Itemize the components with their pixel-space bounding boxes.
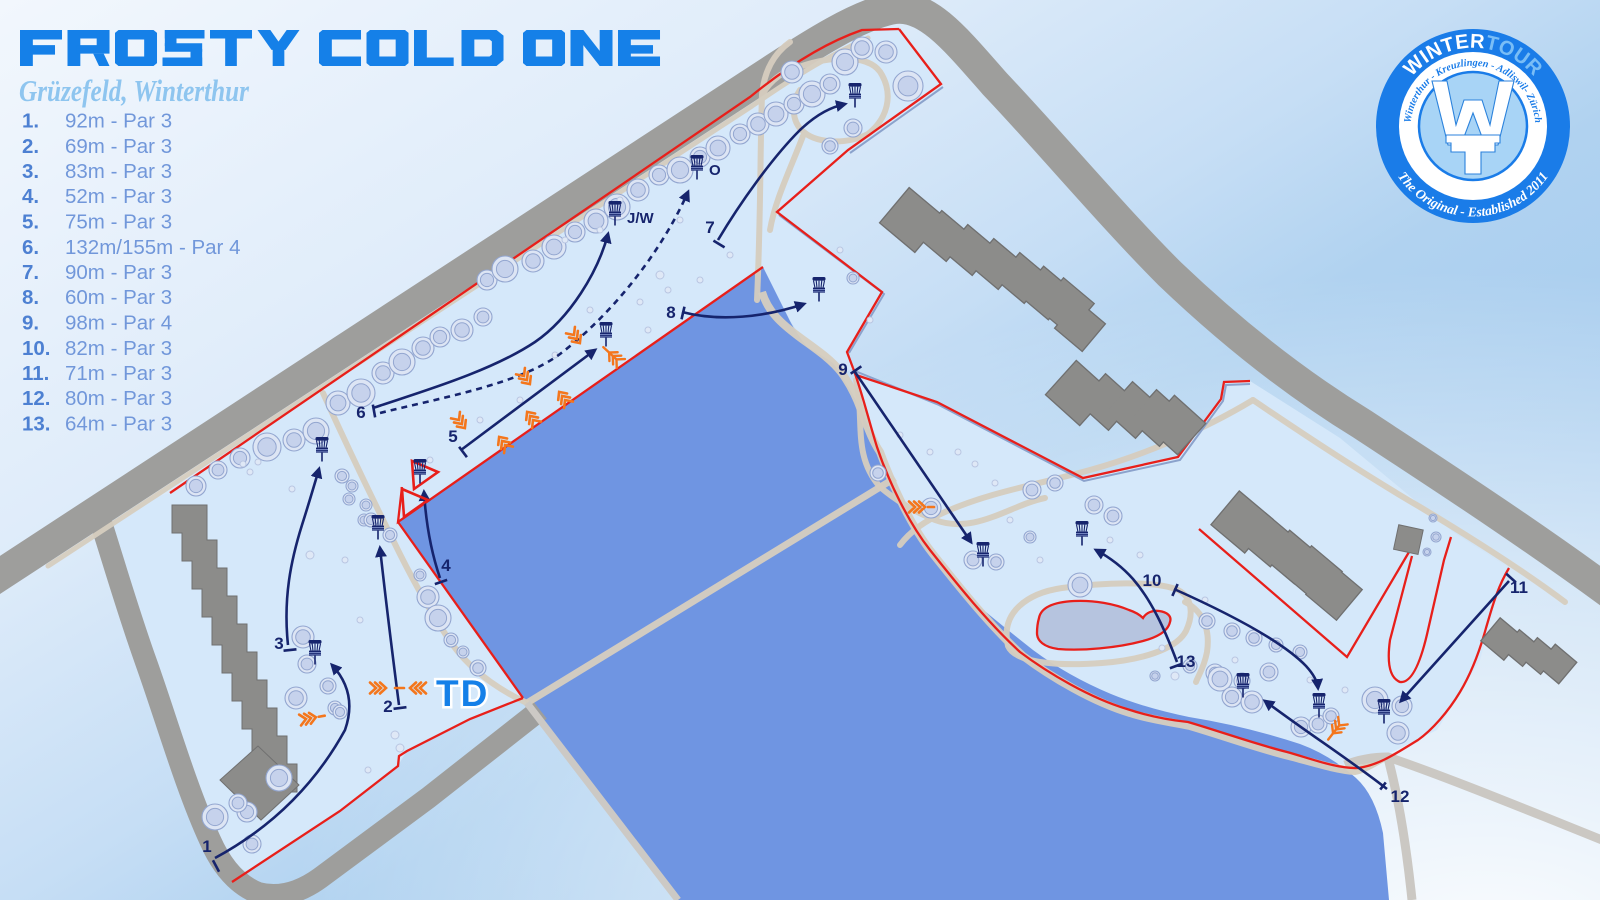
svg-text:3.: 3. (22, 160, 39, 183)
svg-text:98m - Par 4: 98m - Par 4 (65, 312, 172, 335)
svg-text:90m - Par 3: 90m - Par 3 (65, 261, 172, 284)
svg-text:TD: TD (436, 673, 489, 714)
svg-text:92m - Par 3: 92m - Par 3 (65, 110, 172, 133)
svg-text:13: 13 (1177, 652, 1196, 671)
svg-text:6: 6 (356, 403, 365, 422)
svg-text:75m - Par 3: 75m - Par 3 (65, 211, 172, 234)
svg-text:5: 5 (448, 427, 457, 446)
svg-text:11: 11 (1510, 578, 1528, 597)
svg-text:2.: 2. (22, 135, 39, 158)
svg-text:3: 3 (274, 634, 283, 653)
svg-text:8.: 8. (22, 286, 39, 309)
svg-text:4.: 4. (22, 185, 39, 208)
svg-text:71m - Par 3: 71m - Par 3 (65, 362, 172, 385)
svg-text:8: 8 (666, 303, 675, 322)
svg-text:83m - Par 3: 83m - Par 3 (65, 160, 172, 183)
svg-text:Grüzefeld, Winterthur: Grüzefeld, Winterthur (19, 73, 250, 108)
svg-text:10: 10 (1143, 571, 1162, 590)
svg-text:82m - Par 3: 82m - Par 3 (65, 337, 172, 360)
svg-text:12: 12 (1391, 787, 1410, 806)
svg-text:O: O (709, 162, 721, 179)
svg-text:52m - Par 3: 52m - Par 3 (65, 185, 172, 208)
svg-text:1.: 1. (22, 110, 39, 133)
svg-text:80m - Par 3: 80m - Par 3 (65, 387, 172, 410)
svg-text:11.: 11. (22, 362, 49, 385)
svg-text:9.: 9. (22, 312, 39, 335)
svg-text:J/W: J/W (627, 210, 655, 227)
svg-text:6.: 6. (22, 236, 39, 259)
svg-text:1: 1 (202, 837, 211, 856)
svg-text:2: 2 (383, 697, 392, 716)
svg-text:13.: 13. (22, 413, 51, 436)
svg-text:64m - Par 3: 64m - Par 3 (65, 413, 172, 436)
svg-text:10.: 10. (22, 337, 51, 360)
svg-text:9: 9 (838, 360, 847, 379)
svg-text:12.: 12. (22, 387, 51, 410)
svg-text:7: 7 (705, 218, 714, 237)
svg-text:60m - Par 3: 60m - Par 3 (65, 286, 172, 309)
svg-text:5.: 5. (22, 211, 39, 234)
svg-text:7.: 7. (22, 261, 39, 284)
svg-text:4: 4 (441, 556, 451, 575)
svg-text:69m - Par 3: 69m - Par 3 (65, 135, 172, 158)
svg-text:132m/155m - Par 4: 132m/155m - Par 4 (65, 236, 240, 259)
